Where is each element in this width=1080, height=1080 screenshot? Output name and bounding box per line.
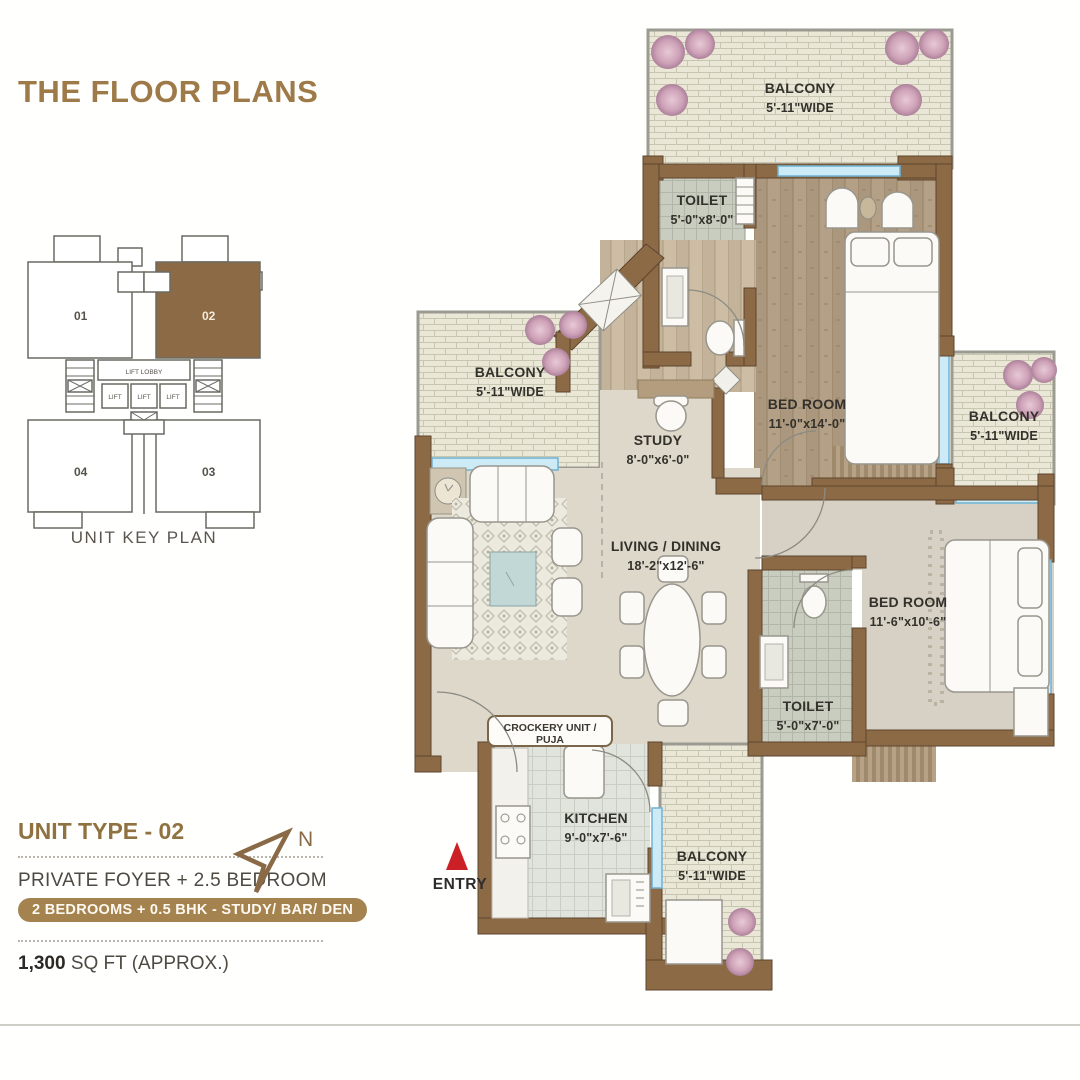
entry-label: ENTRY xyxy=(422,876,498,894)
dresser xyxy=(1014,688,1048,736)
sink-bowl xyxy=(765,644,783,680)
room-label-living-dining: LIVING / DINING 18'-2"x12'-6" xyxy=(582,536,750,576)
room-label-balcony-left: BALCONY 5'-11"WIDE xyxy=(428,362,592,402)
study-chair xyxy=(656,401,686,431)
room-label-balcony-bottom: BALCONY 5'-11"WIDE xyxy=(664,846,760,886)
floor-plan-page: THE FLOOR PLANS 01 02 LIFT LOBBY LIFT LI… xyxy=(0,0,1080,1080)
floor-plan-drawing xyxy=(0,0,1080,1080)
room-label-toilet2: TOILET 5'-0"x7'-0" xyxy=(762,696,854,736)
dining-chair xyxy=(702,646,726,678)
room-label-bedroom2: BED ROOM 11'-6"x10'-6" xyxy=(846,592,970,632)
window xyxy=(778,166,900,176)
arched-window xyxy=(882,192,913,228)
toilet1-wc xyxy=(706,321,734,355)
arched-window xyxy=(826,188,858,228)
armchair xyxy=(552,528,582,566)
room-label-toilet1: TOILET 5'-0"x8'-0" xyxy=(656,190,748,230)
dining-chair xyxy=(620,646,644,678)
wc-tank xyxy=(800,574,828,582)
dining-chair xyxy=(620,592,644,624)
crockery-unit-label: CROCKERY UNIT / PUJA xyxy=(490,722,610,746)
toilet2-wc xyxy=(802,586,826,618)
dining-chair xyxy=(658,700,688,726)
sink-bowl xyxy=(667,276,683,318)
entry-arrow xyxy=(446,842,468,870)
wc-tank xyxy=(734,320,744,356)
armchair xyxy=(552,578,582,616)
room-label-bedroom1: BED ROOM 11'-0"x14'-0" xyxy=(748,394,866,434)
room-label-study: STUDY 8'-0"x6'-0" xyxy=(602,430,714,470)
stove xyxy=(496,806,530,858)
sofa-two-seat xyxy=(427,518,473,648)
room-label-kitchen: KITCHEN 9'-0"x7'-6" xyxy=(536,808,656,848)
washing-machine xyxy=(666,900,722,964)
sofa-three-seat xyxy=(470,466,554,522)
fridge xyxy=(564,746,604,798)
window xyxy=(939,350,949,464)
pillow xyxy=(1018,616,1042,676)
room-label-balcony-right: BALCONY 5'-11"WIDE xyxy=(957,406,1051,446)
coffee-table xyxy=(490,552,536,606)
pillow xyxy=(1018,548,1042,608)
dining-table xyxy=(644,584,700,696)
room-label-balcony-top: BALCONY 5'-11"WIDE xyxy=(715,78,885,118)
pillow xyxy=(851,238,889,266)
wall-mirror xyxy=(860,197,876,219)
pillow xyxy=(894,238,932,266)
dining-chair xyxy=(702,592,726,624)
bottom-divider xyxy=(0,1024,1080,1026)
